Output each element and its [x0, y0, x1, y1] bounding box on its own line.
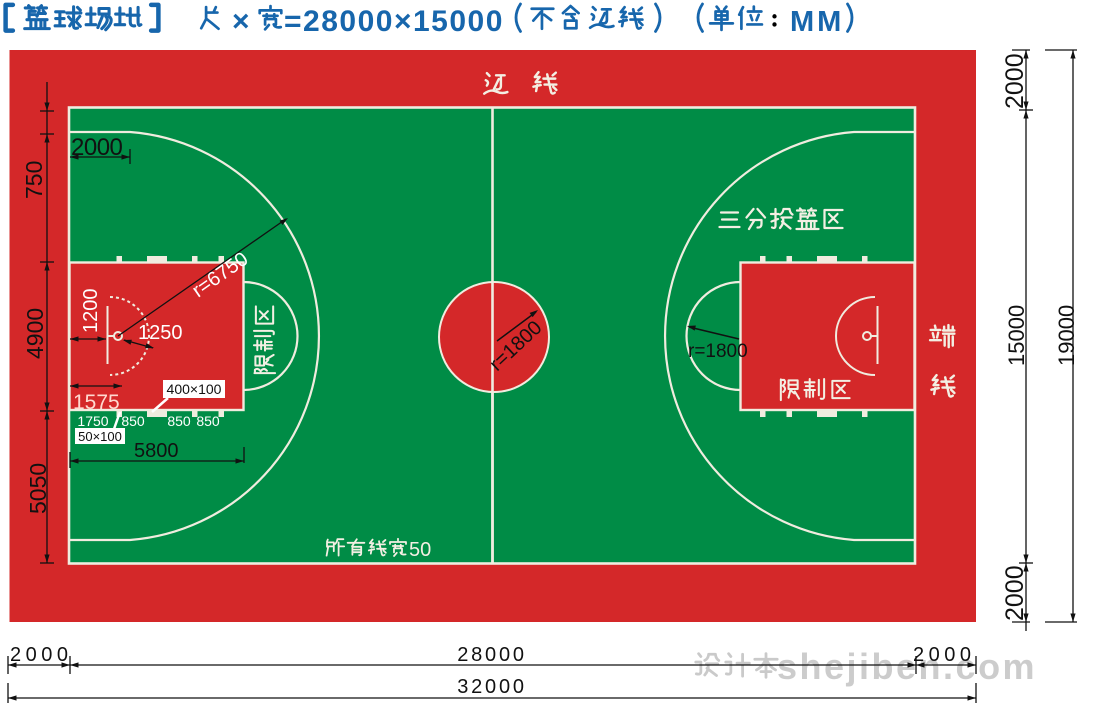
svg-text:×: ×	[232, 5, 250, 38]
svg-text:28000: 28000	[457, 644, 527, 666]
svg-text:400×100: 400×100	[167, 381, 222, 397]
svg-text:4900: 4900	[22, 308, 48, 359]
svg-text:750: 750	[21, 161, 47, 199]
svg-text:19000: 19000	[1054, 305, 1079, 366]
svg-text:=28000×15000: =28000×15000	[284, 5, 504, 38]
svg-text:2000: 2000	[1001, 53, 1029, 109]
svg-text:1750: 1750	[77, 413, 108, 429]
svg-text:2000: 2000	[10, 644, 73, 666]
svg-text:shejiben.com: shejiben.com	[777, 646, 1037, 687]
svg-text:2000: 2000	[913, 644, 976, 666]
svg-text:850: 850	[196, 413, 220, 429]
svg-text:5050: 5050	[25, 463, 51, 514]
svg-text:1575: 1575	[73, 391, 120, 414]
svg-text:5800: 5800	[134, 440, 179, 462]
svg-text:2000: 2000	[1001, 565, 1029, 621]
svg-text:850: 850	[167, 413, 191, 429]
svg-text:r=1800: r=1800	[688, 341, 748, 362]
svg-text:15000: 15000	[1004, 305, 1029, 366]
svg-text:850: 850	[121, 413, 145, 429]
svg-text:50×100: 50×100	[78, 429, 122, 444]
svg-text:1200: 1200	[80, 289, 102, 334]
svg-text:32000: 32000	[457, 676, 527, 698]
svg-text:50: 50	[409, 539, 431, 561]
svg-text:MM: MM	[790, 6, 844, 38]
svg-text:1250: 1250	[138, 322, 183, 344]
